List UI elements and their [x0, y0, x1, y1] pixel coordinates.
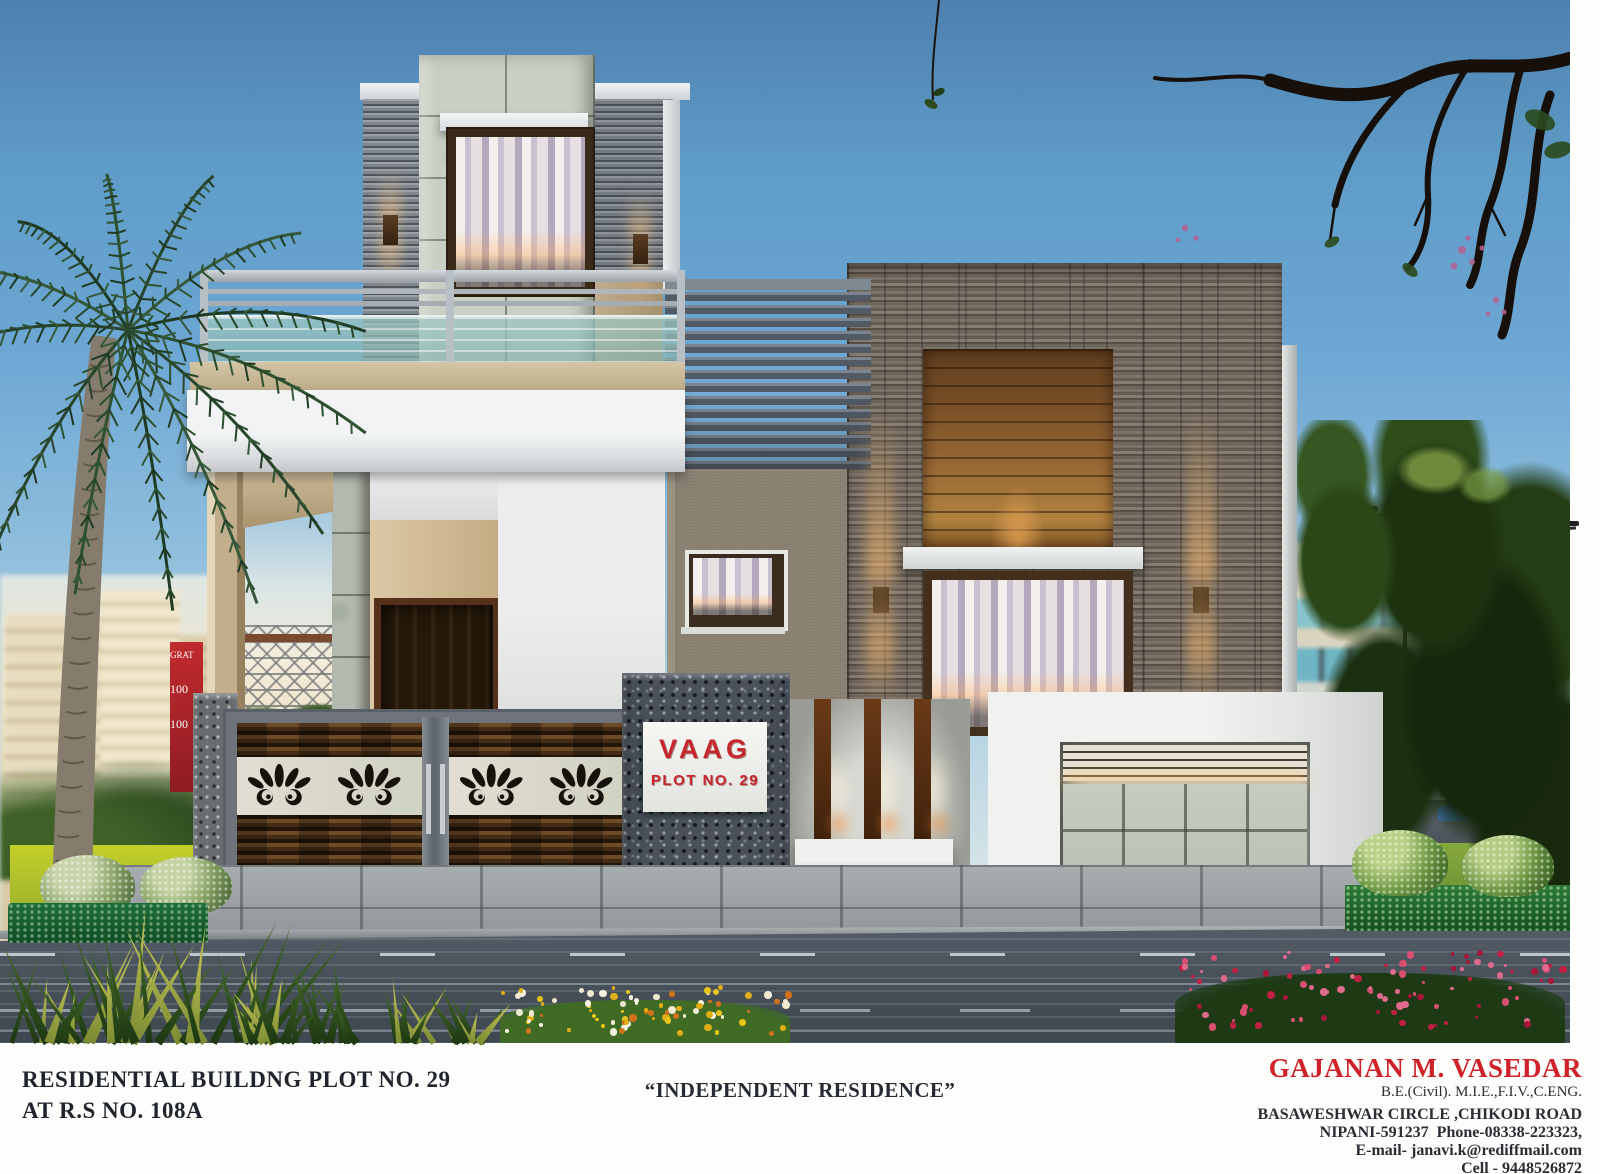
flower	[1460, 967, 1464, 971]
flower	[1497, 951, 1504, 958]
flower	[683, 1014, 687, 1018]
name-plate-brand: VAAG	[643, 734, 767, 765]
flower	[659, 1003, 663, 1007]
right-bush-2	[1462, 835, 1554, 897]
flower	[527, 1019, 531, 1023]
flower	[1422, 981, 1425, 984]
flower	[745, 992, 752, 999]
spiky-plants-4	[385, 975, 490, 1043]
flower	[1488, 962, 1494, 968]
gate-ornament-band-right	[449, 757, 634, 815]
architect-email: E-mail- janavi.k@rediffmail.com	[1258, 1142, 1583, 1160]
flower	[1542, 958, 1548, 964]
flower	[1354, 975, 1361, 982]
flower	[769, 1031, 774, 1036]
flower	[1299, 1017, 1303, 1021]
flower	[612, 986, 615, 989]
daffodil-flower-bed	[500, 985, 790, 1043]
flower	[1399, 1020, 1405, 1026]
flower	[1508, 986, 1512, 990]
flower	[644, 1008, 648, 1012]
flower	[601, 1024, 605, 1028]
flower	[1197, 1004, 1201, 1008]
plant-blade	[390, 978, 402, 1043]
project-title-line1: RESIDENTIAL BUILDNG PLOT NO. 29	[22, 1064, 451, 1095]
flower	[1450, 987, 1454, 991]
flower	[1510, 970, 1514, 974]
flower	[704, 1024, 712, 1032]
flower	[1399, 960, 1406, 967]
plant-blade	[3, 964, 40, 1043]
flower	[721, 1015, 724, 1018]
flower	[1304, 964, 1310, 970]
name-plate: VAAG PLOT NO. 29	[643, 722, 767, 812]
flower	[780, 1025, 786, 1031]
flower	[585, 1000, 592, 1007]
flower	[529, 1011, 534, 1016]
flower	[515, 993, 521, 999]
flower	[541, 1002, 545, 1006]
flower	[677, 1030, 683, 1036]
flower	[619, 1028, 625, 1034]
flower	[764, 991, 771, 998]
flower	[1417, 994, 1424, 1001]
flower	[1477, 950, 1483, 956]
architectural-rendering-page: GRAT 100 100	[0, 0, 1600, 1174]
flower	[1283, 955, 1287, 959]
flower	[774, 999, 779, 1004]
flower	[653, 994, 659, 1000]
flower	[537, 996, 543, 1002]
flower	[1221, 975, 1228, 982]
flower	[587, 990, 594, 997]
flower	[708, 1000, 711, 1003]
project-title-line2: AT R.S NO. 108A	[22, 1095, 451, 1126]
flower	[610, 1028, 617, 1035]
flower	[567, 1028, 570, 1031]
flower	[665, 1010, 669, 1014]
flower	[1451, 966, 1456, 971]
flower	[1287, 951, 1291, 955]
flower	[696, 1003, 703, 1010]
flower	[599, 990, 606, 997]
architect-credentials: B.E.(Civil). M.I.E.,F.I.V.,C.ENG.	[1258, 1083, 1583, 1101]
name-plate-plot: PLOT NO. 29	[643, 772, 767, 789]
flower	[1396, 1002, 1404, 1010]
flower	[1515, 996, 1519, 1000]
flower	[505, 1029, 509, 1033]
rose-flower-bed	[1175, 950, 1565, 1043]
small-window	[685, 550, 788, 631]
tower-corner-strip	[663, 100, 680, 292]
flower	[634, 998, 639, 1003]
flower	[1325, 990, 1329, 994]
flower	[1413, 992, 1416, 995]
flower	[718, 985, 723, 990]
flower	[1497, 972, 1504, 979]
hanging-twig	[915, 0, 955, 120]
flower	[1391, 1010, 1396, 1015]
flower	[1548, 978, 1554, 984]
flower	[1325, 964, 1330, 969]
flower	[1230, 1022, 1237, 1029]
flower	[1191, 975, 1194, 978]
architect-block: GAJANAN M. VASEDAR B.E.(Civil). M.I.E.,F…	[1258, 1053, 1583, 1174]
flower	[1321, 1015, 1327, 1021]
flower	[1464, 954, 1469, 959]
flower	[1559, 966, 1566, 973]
wood-feature-panel	[923, 349, 1113, 549]
flower	[1334, 957, 1339, 962]
flower	[1384, 964, 1388, 968]
flower	[783, 999, 788, 1004]
flower	[626, 990, 630, 994]
flower	[620, 1001, 626, 1007]
stone-window-shelf	[903, 547, 1143, 569]
flower	[665, 1017, 671, 1023]
flower	[676, 1006, 681, 1011]
stone-wash-left	[866, 405, 894, 705]
flower	[1377, 993, 1383, 999]
flower	[1211, 955, 1217, 961]
flower	[1421, 966, 1426, 971]
project-title: RESIDENTIAL BUILDNG PLOT NO. 29 AT R.S N…	[22, 1064, 451, 1126]
exterior-render: GRAT 100 100	[0, 0, 1570, 1043]
architect-name: GAJANAN M. VASEDAR	[1258, 1053, 1583, 1083]
flower	[1540, 979, 1543, 982]
flower	[1200, 970, 1203, 973]
flower	[1474, 959, 1480, 965]
flower	[1395, 989, 1400, 994]
flower	[579, 988, 584, 993]
flower	[501, 991, 505, 995]
flower	[552, 998, 557, 1003]
flower	[1232, 968, 1238, 974]
flower	[1502, 998, 1510, 1006]
flower	[669, 991, 675, 997]
architect-address-line1: BASAWESHWAR CIRCLE ,CHIKODI ROAD	[1258, 1106, 1583, 1124]
flower	[1209, 1023, 1216, 1030]
flower	[1376, 1010, 1380, 1014]
flower	[1451, 952, 1455, 956]
right-bush-1	[1352, 830, 1448, 896]
flower	[1240, 1008, 1247, 1015]
tower-sconce-right	[633, 234, 648, 264]
flower	[1182, 964, 1188, 970]
architect-address-line2: NIPANI-591237 Phone-08338-223323,	[1258, 1124, 1583, 1142]
flower	[1504, 964, 1507, 967]
flower	[1197, 979, 1202, 984]
flower	[519, 988, 524, 993]
stone-wash-right	[1187, 405, 1215, 705]
flower	[1531, 968, 1538, 975]
flower	[1316, 969, 1321, 974]
tree-highlight	[1390, 430, 1520, 520]
residence-subtitle: “INDEPENDENT RESIDENCE”	[500, 1078, 1100, 1103]
louver-screen	[665, 279, 871, 469]
flower	[1291, 1018, 1294, 1021]
flower	[704, 987, 711, 994]
flower	[1287, 973, 1293, 979]
flower	[1255, 1022, 1262, 1029]
flower	[1390, 969, 1396, 975]
spiky-plants-3	[235, 955, 365, 1043]
flower	[1466, 960, 1470, 964]
flower	[1542, 964, 1549, 971]
small-window-sill	[681, 627, 785, 634]
flower	[1399, 970, 1406, 977]
parapet-strip-right	[1282, 345, 1297, 713]
flower	[1407, 951, 1415, 959]
architect-cell: Cell - 9448526872	[1258, 1160, 1583, 1174]
